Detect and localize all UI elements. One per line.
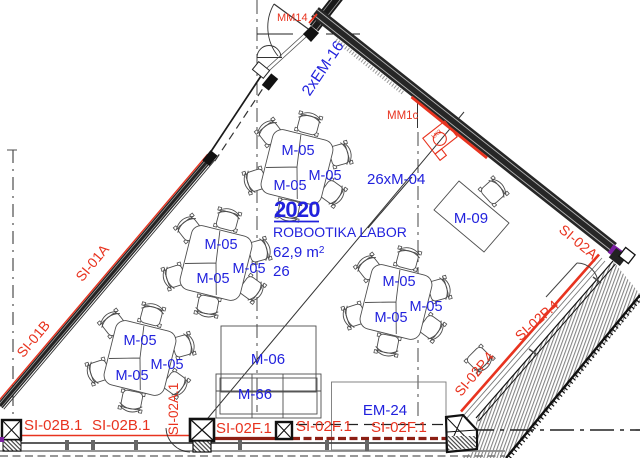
svg-text:MM14: MM14 [277,12,308,24]
svg-text:M-05: M-05 [204,237,237,253]
svg-text:M-05: M-05 [308,168,341,184]
svg-text:SI-02B.1: SI-02B.1 [24,417,82,434]
svg-text:SI-02A.1: SI-02A.1 [166,383,181,436]
svg-text:MM1c: MM1c [387,110,419,122]
svg-text:SI-02F.1: SI-02F.1 [216,420,272,437]
svg-text:M-05: M-05 [150,357,183,373]
svg-text:SI-02B.1: SI-02B.1 [92,417,150,434]
svg-text:EM-24: EM-24 [363,402,407,419]
svg-text:M-06: M-06 [251,351,285,368]
svg-text:ROBOOTIKA LABOR: ROBOOTIKA LABOR [273,224,407,240]
svg-text:SI-02F.1: SI-02F.1 [371,419,427,436]
svg-text:M-05: M-05 [273,178,306,194]
svg-text:62,9 m2: 62,9 m2 [273,244,325,261]
svg-text:M-05: M-05 [123,333,156,349]
svg-text:26xM-04: 26xM-04 [367,171,425,188]
svg-text:2020: 2020 [274,197,320,222]
svg-text:M-66: M-66 [238,386,272,403]
svg-text:26: 26 [273,263,290,280]
svg-text:M-05: M-05 [409,299,442,315]
svg-text:M-09: M-09 [454,210,488,227]
svg-text:M-05: M-05 [281,143,314,159]
svg-text:M-05: M-05 [232,261,265,277]
svg-text:M-05: M-05 [196,271,229,287]
svg-text:M-05: M-05 [374,310,407,326]
svg-text:M-05: M-05 [115,368,148,384]
svg-text:M-05: M-05 [382,274,415,290]
svg-text:SI-02F.1: SI-02F.1 [296,418,352,435]
